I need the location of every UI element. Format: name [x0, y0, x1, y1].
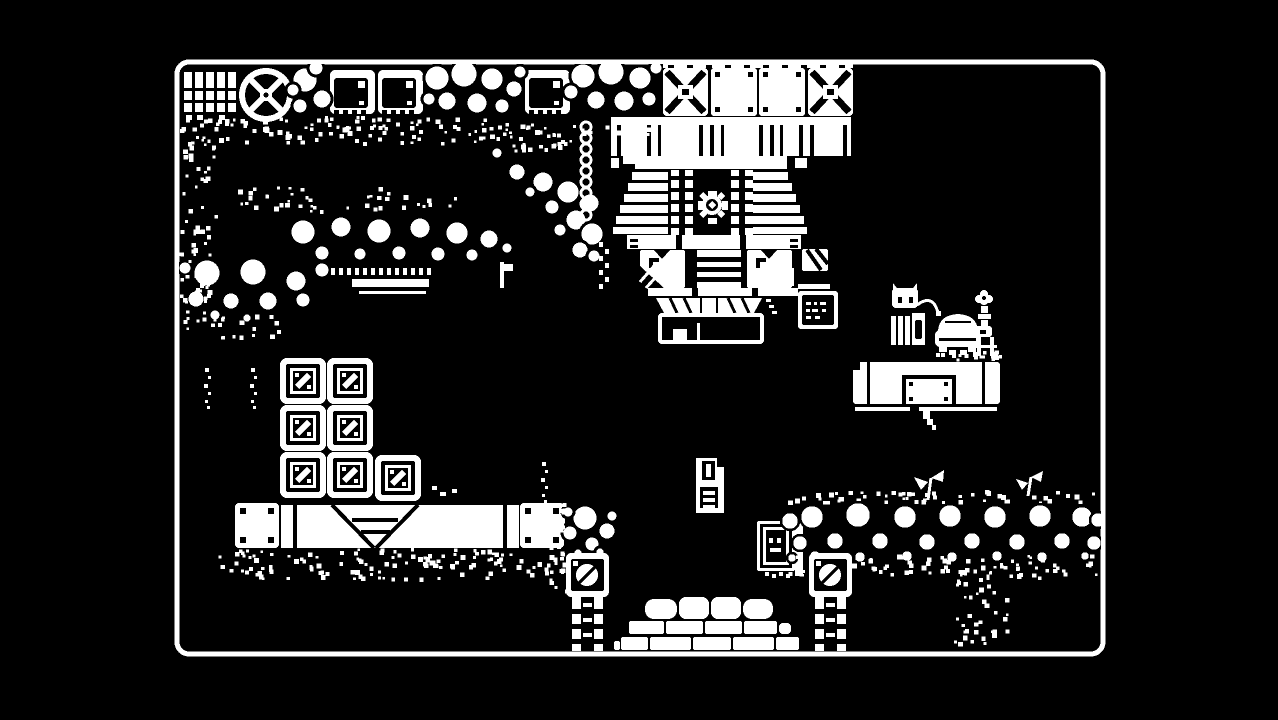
- speckle: [370, 573, 373, 576]
- berry: [800, 505, 824, 529]
- speckle: [560, 509, 564, 513]
- tree-bubble: [513, 65, 527, 79]
- tree-bubble: [598, 522, 616, 540]
- speckle: [186, 174, 189, 177]
- speckle: [531, 123, 534, 126]
- speckle: [212, 148, 215, 151]
- speckle: [885, 495, 888, 498]
- speckle: [957, 579, 960, 582]
- berry: [893, 505, 917, 529]
- speckle: [514, 149, 517, 152]
- speckle: [299, 204, 303, 208]
- speckle: [557, 134, 561, 138]
- speckle: [989, 572, 992, 575]
- speckle: [245, 140, 249, 144]
- speckle: [795, 499, 800, 504]
- speckle: [201, 206, 204, 209]
- speckle: [994, 566, 997, 569]
- speckle: [956, 584, 959, 587]
- speckle: [451, 565, 455, 569]
- speckle: [416, 123, 419, 126]
- tree-bubble: [424, 65, 450, 91]
- speckle: [221, 565, 225, 569]
- speckle: [391, 556, 394, 559]
- speckle: [183, 149, 188, 154]
- speckle: [926, 561, 931, 566]
- speckle: [941, 353, 945, 357]
- speckle: [482, 123, 485, 126]
- speckle: [211, 323, 215, 327]
- speckle: [983, 499, 986, 502]
- speckle: [1062, 569, 1065, 572]
- speckle: [400, 141, 404, 145]
- speckle: [1016, 563, 1019, 566]
- speckle: [185, 301, 188, 304]
- speckle: [336, 126, 339, 129]
- berry: [983, 505, 1007, 529]
- speckle: [503, 132, 507, 136]
- speckle: [994, 611, 998, 615]
- speckle: [959, 495, 962, 498]
- speckle: [367, 196, 370, 199]
- speckle: [941, 569, 946, 574]
- speckle: [317, 118, 321, 122]
- speckle: [979, 620, 983, 624]
- speckle: [927, 557, 931, 561]
- speckle: [326, 572, 330, 576]
- speckle: [460, 573, 464, 577]
- speckle: [246, 549, 249, 552]
- speckle: [496, 137, 500, 141]
- speckle: [206, 226, 211, 231]
- speckle: [958, 642, 963, 647]
- speckle: [189, 260, 192, 263]
- game-viewport[interactable]: [0, 0, 1278, 720]
- speckle: [796, 556, 799, 559]
- speckle: [279, 117, 283, 121]
- speckle: [468, 133, 471, 136]
- speckle: [287, 577, 290, 580]
- speckle: [339, 562, 343, 566]
- speckle: [194, 254, 197, 257]
- speckle: [254, 558, 259, 563]
- speckle: [384, 127, 388, 131]
- speckle: [974, 356, 978, 360]
- speckle: [193, 229, 197, 233]
- berry: [871, 532, 889, 550]
- speckle: [551, 511, 554, 514]
- speckle: [823, 501, 826, 504]
- speckle: [277, 130, 282, 135]
- speckle: [479, 136, 483, 140]
- berry: [1080, 551, 1090, 561]
- speckle: [437, 559, 441, 563]
- speckle: [196, 167, 200, 171]
- speckle: [904, 571, 908, 575]
- berry: [963, 532, 981, 550]
- speckle: [328, 123, 332, 127]
- speckle: [207, 290, 212, 295]
- speckle: [562, 553, 565, 556]
- speckle: [995, 350, 999, 354]
- speckle: [222, 316, 225, 319]
- speckle: [973, 570, 977, 574]
- speckle: [788, 500, 793, 505]
- tree-bubble: [292, 98, 308, 114]
- speckle: [423, 205, 426, 208]
- hotel-sign: [798, 291, 838, 329]
- speckle: [252, 327, 256, 331]
- berry: [826, 532, 844, 550]
- speckle: [321, 575, 326, 580]
- speckle: [855, 556, 859, 560]
- speckle: [494, 562, 498, 566]
- speckle: [892, 491, 896, 495]
- speckle: [885, 500, 888, 503]
- speckle: [239, 550, 242, 553]
- tree-bubble: [613, 90, 635, 112]
- speckle: [287, 200, 290, 203]
- speckle: [1056, 491, 1060, 495]
- speckle: [1045, 569, 1049, 573]
- speckle: [243, 554, 246, 557]
- speckle: [180, 230, 184, 234]
- speckle: [309, 198, 313, 202]
- speckle: [253, 129, 257, 133]
- berry: [991, 550, 1003, 562]
- speckle: [243, 124, 247, 128]
- speckle: [521, 124, 526, 129]
- speckle: [377, 196, 381, 200]
- speckle: [561, 520, 565, 524]
- speckle: [188, 153, 193, 158]
- speckle: [261, 550, 264, 553]
- speckle: [969, 596, 973, 600]
- speckle: [340, 134, 345, 139]
- tree-bubble: [178, 261, 192, 275]
- speckle: [357, 126, 362, 131]
- speckle: [426, 117, 430, 121]
- speckle: [946, 569, 950, 573]
- speckle: [569, 140, 572, 143]
- speckle: [455, 561, 459, 565]
- speckle: [981, 559, 984, 562]
- speckle: [544, 127, 547, 130]
- speckle: [1011, 560, 1014, 563]
- speckle: [285, 120, 288, 123]
- speckle: [397, 553, 401, 557]
- speckle: [954, 641, 957, 644]
- speckle: [550, 571, 554, 575]
- speckle: [1016, 566, 1020, 570]
- speckle: [959, 354, 962, 357]
- speckle: [1001, 495, 1006, 500]
- speckle: [381, 549, 385, 553]
- speckle: [510, 553, 513, 556]
- speckle: [971, 640, 975, 644]
- speckle: [255, 314, 260, 319]
- speckle: [481, 550, 485, 554]
- speckle: [965, 354, 969, 358]
- speckle: [816, 493, 821, 498]
- speckle: [252, 555, 255, 558]
- tree-bubble: [501, 242, 513, 254]
- speckle: [561, 569, 565, 573]
- speckle: [369, 134, 373, 138]
- speckle: [180, 294, 183, 297]
- speckle: [184, 320, 188, 324]
- speckle: [1000, 565, 1004, 569]
- speckle: [212, 155, 215, 158]
- speckle: [616, 131, 621, 136]
- speckle: [1041, 558, 1045, 562]
- speckle: [200, 284, 204, 288]
- berry: [845, 502, 871, 528]
- speckle: [393, 563, 398, 568]
- speckle: [868, 559, 873, 564]
- tree-bubble: [445, 221, 469, 245]
- speckle: [216, 122, 220, 126]
- tree-bubble: [330, 216, 352, 238]
- speckle: [535, 130, 540, 135]
- speckle: [963, 582, 968, 587]
- speckle: [186, 311, 189, 314]
- tree-bubble: [524, 186, 536, 198]
- speckle: [453, 125, 457, 129]
- speckle: [1032, 573, 1036, 577]
- speckle: [204, 119, 208, 123]
- speckle: [202, 139, 205, 142]
- speckle: [188, 209, 193, 214]
- speckle: [274, 321, 279, 326]
- speckle: [196, 319, 199, 322]
- speckle: [378, 206, 382, 210]
- speckle: [286, 141, 289, 144]
- speckle: [369, 567, 373, 571]
- speckle: [528, 147, 532, 151]
- speckle: [308, 552, 312, 556]
- speckle: [1038, 576, 1041, 579]
- speckle: [249, 567, 253, 571]
- speckle: [829, 493, 834, 498]
- speckle: [317, 564, 322, 569]
- speckle: [290, 193, 293, 196]
- speckle: [378, 117, 382, 121]
- speckle: [245, 570, 249, 574]
- speckle: [861, 562, 865, 566]
- speckle: [418, 557, 423, 562]
- speckle: [365, 204, 369, 208]
- speckle: [564, 508, 567, 511]
- speckle: [218, 555, 221, 558]
- speckle: [964, 596, 967, 599]
- speckle: [547, 135, 550, 138]
- speckle: [1004, 566, 1008, 570]
- speckle: [914, 500, 918, 504]
- speckle: [311, 205, 314, 208]
- speckle: [555, 586, 558, 589]
- speckle: [356, 116, 359, 119]
- berry: [1008, 533, 1026, 551]
- speckle: [186, 327, 189, 330]
- speckle: [482, 128, 487, 133]
- speckle: [325, 119, 329, 123]
- tree-bubble: [544, 199, 560, 215]
- speckle: [527, 569, 531, 573]
- speckle: [979, 578, 983, 582]
- speckle: [201, 229, 206, 234]
- speckle: [203, 318, 207, 322]
- speckle: [455, 117, 460, 122]
- speckle: [526, 127, 529, 130]
- speckle: [983, 351, 986, 354]
- speckle: [289, 187, 292, 190]
- speckle: [302, 560, 306, 564]
- speckle: [1056, 566, 1059, 569]
- speckle: [549, 581, 553, 585]
- speckle: [270, 553, 273, 556]
- speckle: [204, 300, 207, 303]
- speckle: [562, 503, 566, 507]
- tree-bubble: [285, 270, 307, 292]
- speckle: [961, 570, 966, 575]
- tree-bubble: [641, 91, 657, 107]
- speckle: [248, 196, 252, 200]
- speckle: [204, 171, 207, 174]
- speckle: [193, 128, 197, 132]
- speckle: [558, 145, 563, 150]
- speckle: [432, 560, 435, 563]
- tree-bubble: [437, 91, 457, 111]
- tree-bubble: [606, 510, 618, 522]
- tree-bubble: [193, 259, 221, 287]
- speckle: [1029, 561, 1032, 564]
- speckle: [230, 569, 234, 573]
- speckle: [340, 551, 344, 555]
- speckle: [382, 577, 385, 580]
- speckle: [252, 334, 255, 337]
- speckle: [902, 498, 905, 501]
- speckle: [909, 563, 914, 568]
- speckle: [550, 546, 554, 550]
- speckle: [958, 500, 963, 505]
- speckle: [355, 119, 359, 123]
- speckle: [384, 562, 389, 567]
- speckle: [358, 575, 362, 579]
- speckle: [505, 128, 508, 131]
- speckle: [193, 248, 198, 253]
- speckle: [474, 130, 477, 133]
- speckle: [826, 501, 830, 505]
- speckle: [219, 138, 224, 143]
- speckle: [378, 577, 381, 580]
- speckle: [537, 562, 542, 567]
- speckle: [454, 197, 457, 200]
- speckle: [402, 206, 406, 210]
- tree-bubble: [505, 80, 523, 98]
- speckle: [207, 283, 210, 286]
- tree-bubble: [466, 92, 488, 114]
- speckle: [378, 570, 381, 573]
- speckle: [940, 556, 944, 560]
- tree-bubble: [295, 292, 311, 308]
- speckle: [564, 142, 568, 146]
- speckle: [418, 137, 422, 141]
- speckle: [490, 558, 493, 561]
- speckle: [194, 273, 198, 277]
- speckle: [879, 570, 883, 574]
- speckle: [560, 557, 564, 561]
- tree-bubble: [258, 291, 278, 311]
- speckle: [555, 520, 559, 524]
- speckle: [203, 179, 207, 183]
- speckle: [240, 203, 243, 206]
- speckle: [379, 187, 383, 191]
- speckle: [274, 207, 279, 212]
- speckle: [186, 118, 190, 122]
- speckle: [510, 136, 513, 139]
- speckle: [982, 355, 985, 358]
- speckle: [320, 210, 324, 214]
- speckle: [559, 504, 562, 507]
- speckle: [995, 356, 999, 360]
- speckle: [547, 563, 551, 567]
- speckle: [902, 492, 905, 495]
- speckle: [1035, 566, 1038, 569]
- speckle: [428, 203, 432, 207]
- speckle: [207, 140, 210, 143]
- speckle: [899, 492, 903, 496]
- speckle: [877, 492, 881, 496]
- speckle: [423, 562, 428, 567]
- speckle: [277, 187, 280, 190]
- speckle: [196, 136, 199, 139]
- speckle: [245, 202, 248, 205]
- speckle: [318, 132, 322, 136]
- speckle: [428, 554, 432, 558]
- speckle: [439, 566, 442, 569]
- speckle: [454, 549, 457, 552]
- speckle: [191, 141, 194, 144]
- speckle: [539, 145, 543, 149]
- speckle: [987, 585, 991, 589]
- speckle: [976, 592, 979, 595]
- speckle: [557, 545, 561, 549]
- speckle: [403, 195, 408, 200]
- speckle: [545, 571, 549, 575]
- speckle: [503, 569, 506, 572]
- speckle: [204, 242, 207, 245]
- speckle: [305, 126, 308, 129]
- speckle: [201, 178, 204, 181]
- speckle: [873, 569, 876, 572]
- speckle: [254, 206, 259, 211]
- speckle: [1005, 598, 1009, 602]
- speckle: [294, 559, 299, 564]
- speckle: [392, 578, 396, 582]
- speckle: [498, 126, 502, 130]
- speckle: [405, 562, 408, 565]
- tree-bubble: [314, 245, 330, 261]
- speckle: [932, 491, 936, 495]
- speckle: [387, 192, 391, 196]
- speckle: [234, 562, 238, 566]
- speckle: [355, 139, 359, 143]
- speckle: [241, 569, 244, 572]
- speckle: [378, 126, 382, 130]
- berry: [1028, 504, 1052, 528]
- speckle: [357, 558, 360, 561]
